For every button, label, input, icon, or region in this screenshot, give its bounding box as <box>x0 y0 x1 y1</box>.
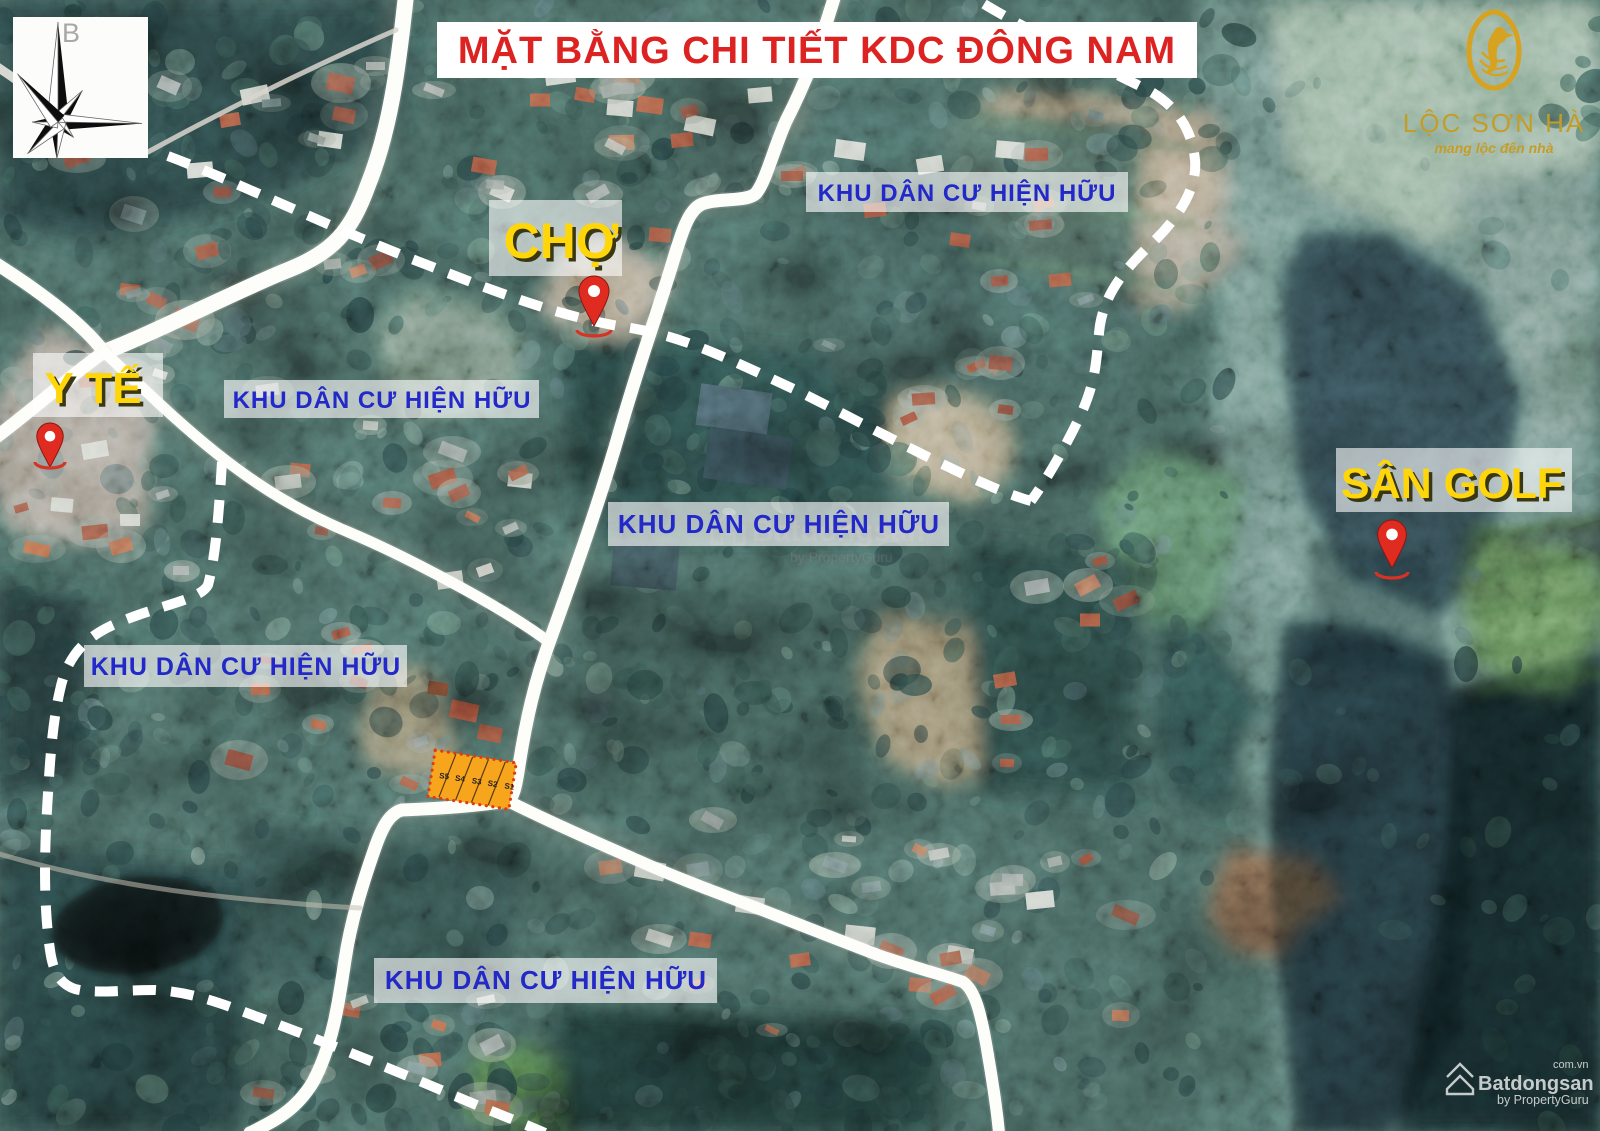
svg-text:Y TẾ: Y TẾ <box>44 363 141 413</box>
svg-text:S1: S1 <box>504 781 516 792</box>
svg-text:S4: S4 <box>454 774 466 785</box>
svg-text:KHU DÂN CƯ HIỆN HỮU: KHU DÂN CƯ HIỆN HỮU <box>818 179 1117 207</box>
svg-text:CHỢ: CHỢ <box>504 213 619 269</box>
svg-text:KHU DÂN CƯ HIỆN HỮU: KHU DÂN CƯ HIỆN HỮU <box>385 965 707 995</box>
svg-text:B: B <box>62 18 80 48</box>
svg-text:KHU DÂN CƯ HIỆN HỮU: KHU DÂN CƯ HIỆN HỮU <box>91 651 401 681</box>
svg-text:KHU DÂN CƯ HIỆN HỮU: KHU DÂN CƯ HIỆN HỮU <box>618 509 940 539</box>
svg-text:S3: S3 <box>471 776 483 787</box>
svg-text:Batdongsan: Batdongsan <box>1478 1073 1594 1095</box>
svg-text:by PropertyGuru: by PropertyGuru <box>1497 1093 1589 1107</box>
svg-text:S2: S2 <box>487 779 499 790</box>
svg-text:SÂN GOLF: SÂN GOLF <box>1341 459 1563 508</box>
svg-text:by PropertyGuru: by PropertyGuru <box>790 549 893 565</box>
svg-text:com.vn: com.vn <box>1553 1059 1588 1071</box>
svg-text:S5: S5 <box>439 771 451 782</box>
svg-text:LỘC SƠN HÀ: LỘC SƠN HÀ <box>1403 108 1585 138</box>
svg-text:MẶT BẰNG CHI TIẾT KDC ĐÔNG NAM: MẶT BẰNG CHI TIẾT KDC ĐÔNG NAM <box>458 27 1176 72</box>
svg-text:KHU DÂN CƯ HIỆN HỮU: KHU DÂN CƯ HIỆN HỮU <box>233 386 532 414</box>
svg-text:mang lộc đến nhà: mang lộc đến nhà <box>1434 140 1553 156</box>
